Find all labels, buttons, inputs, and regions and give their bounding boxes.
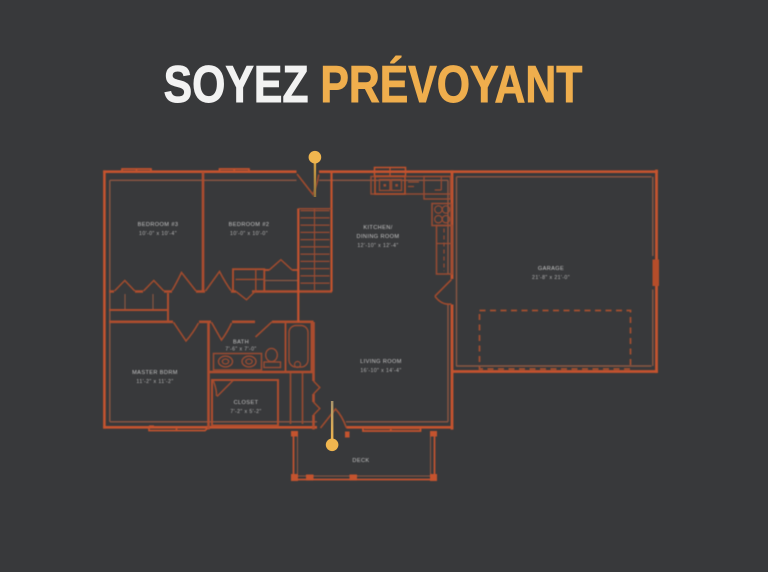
svg-text:GARAGE: GARAGE (538, 266, 564, 272)
svg-text:BATH: BATH (233, 340, 249, 346)
svg-text:7'-6" x 7'-0": 7'-6" x 7'-0" (225, 347, 256, 353)
svg-text:CLOSET: CLOSET (234, 400, 259, 406)
svg-text:SOYEZ PRÉVOYANT: SOYEZ PRÉVOYANT (164, 55, 583, 114)
svg-text:11'-2" x 11'-2": 11'-2" x 11'-2" (136, 379, 173, 385)
svg-text:LIVING ROOM: LIVING ROOM (360, 359, 402, 365)
svg-text:12'-10" x 12'-4": 12'-10" x 12'-4" (357, 243, 398, 249)
svg-text:10'-0" x 10'-4": 10'-0" x 10'-4" (139, 231, 177, 237)
svg-text:MASTER BDRM: MASTER BDRM (132, 370, 178, 376)
svg-text:DECK: DECK (352, 458, 369, 464)
svg-text:21'-8" x 21'-0": 21'-8" x 21'-0" (532, 275, 570, 281)
svg-text:BEDROOM #3: BEDROOM #3 (138, 222, 179, 228)
svg-text:KITCHEN/: KITCHEN/ (363, 225, 392, 231)
svg-text:BEDROOM #2: BEDROOM #2 (229, 222, 270, 228)
svg-text:10'-0" x 10'-0": 10'-0" x 10'-0" (230, 231, 268, 237)
svg-text:7'-2" x 5'-2": 7'-2" x 5'-2" (230, 409, 261, 415)
svg-text:16'-10" x 14'-4": 16'-10" x 14'-4" (360, 368, 401, 374)
svg-text:DINING ROOM: DINING ROOM (357, 234, 400, 240)
